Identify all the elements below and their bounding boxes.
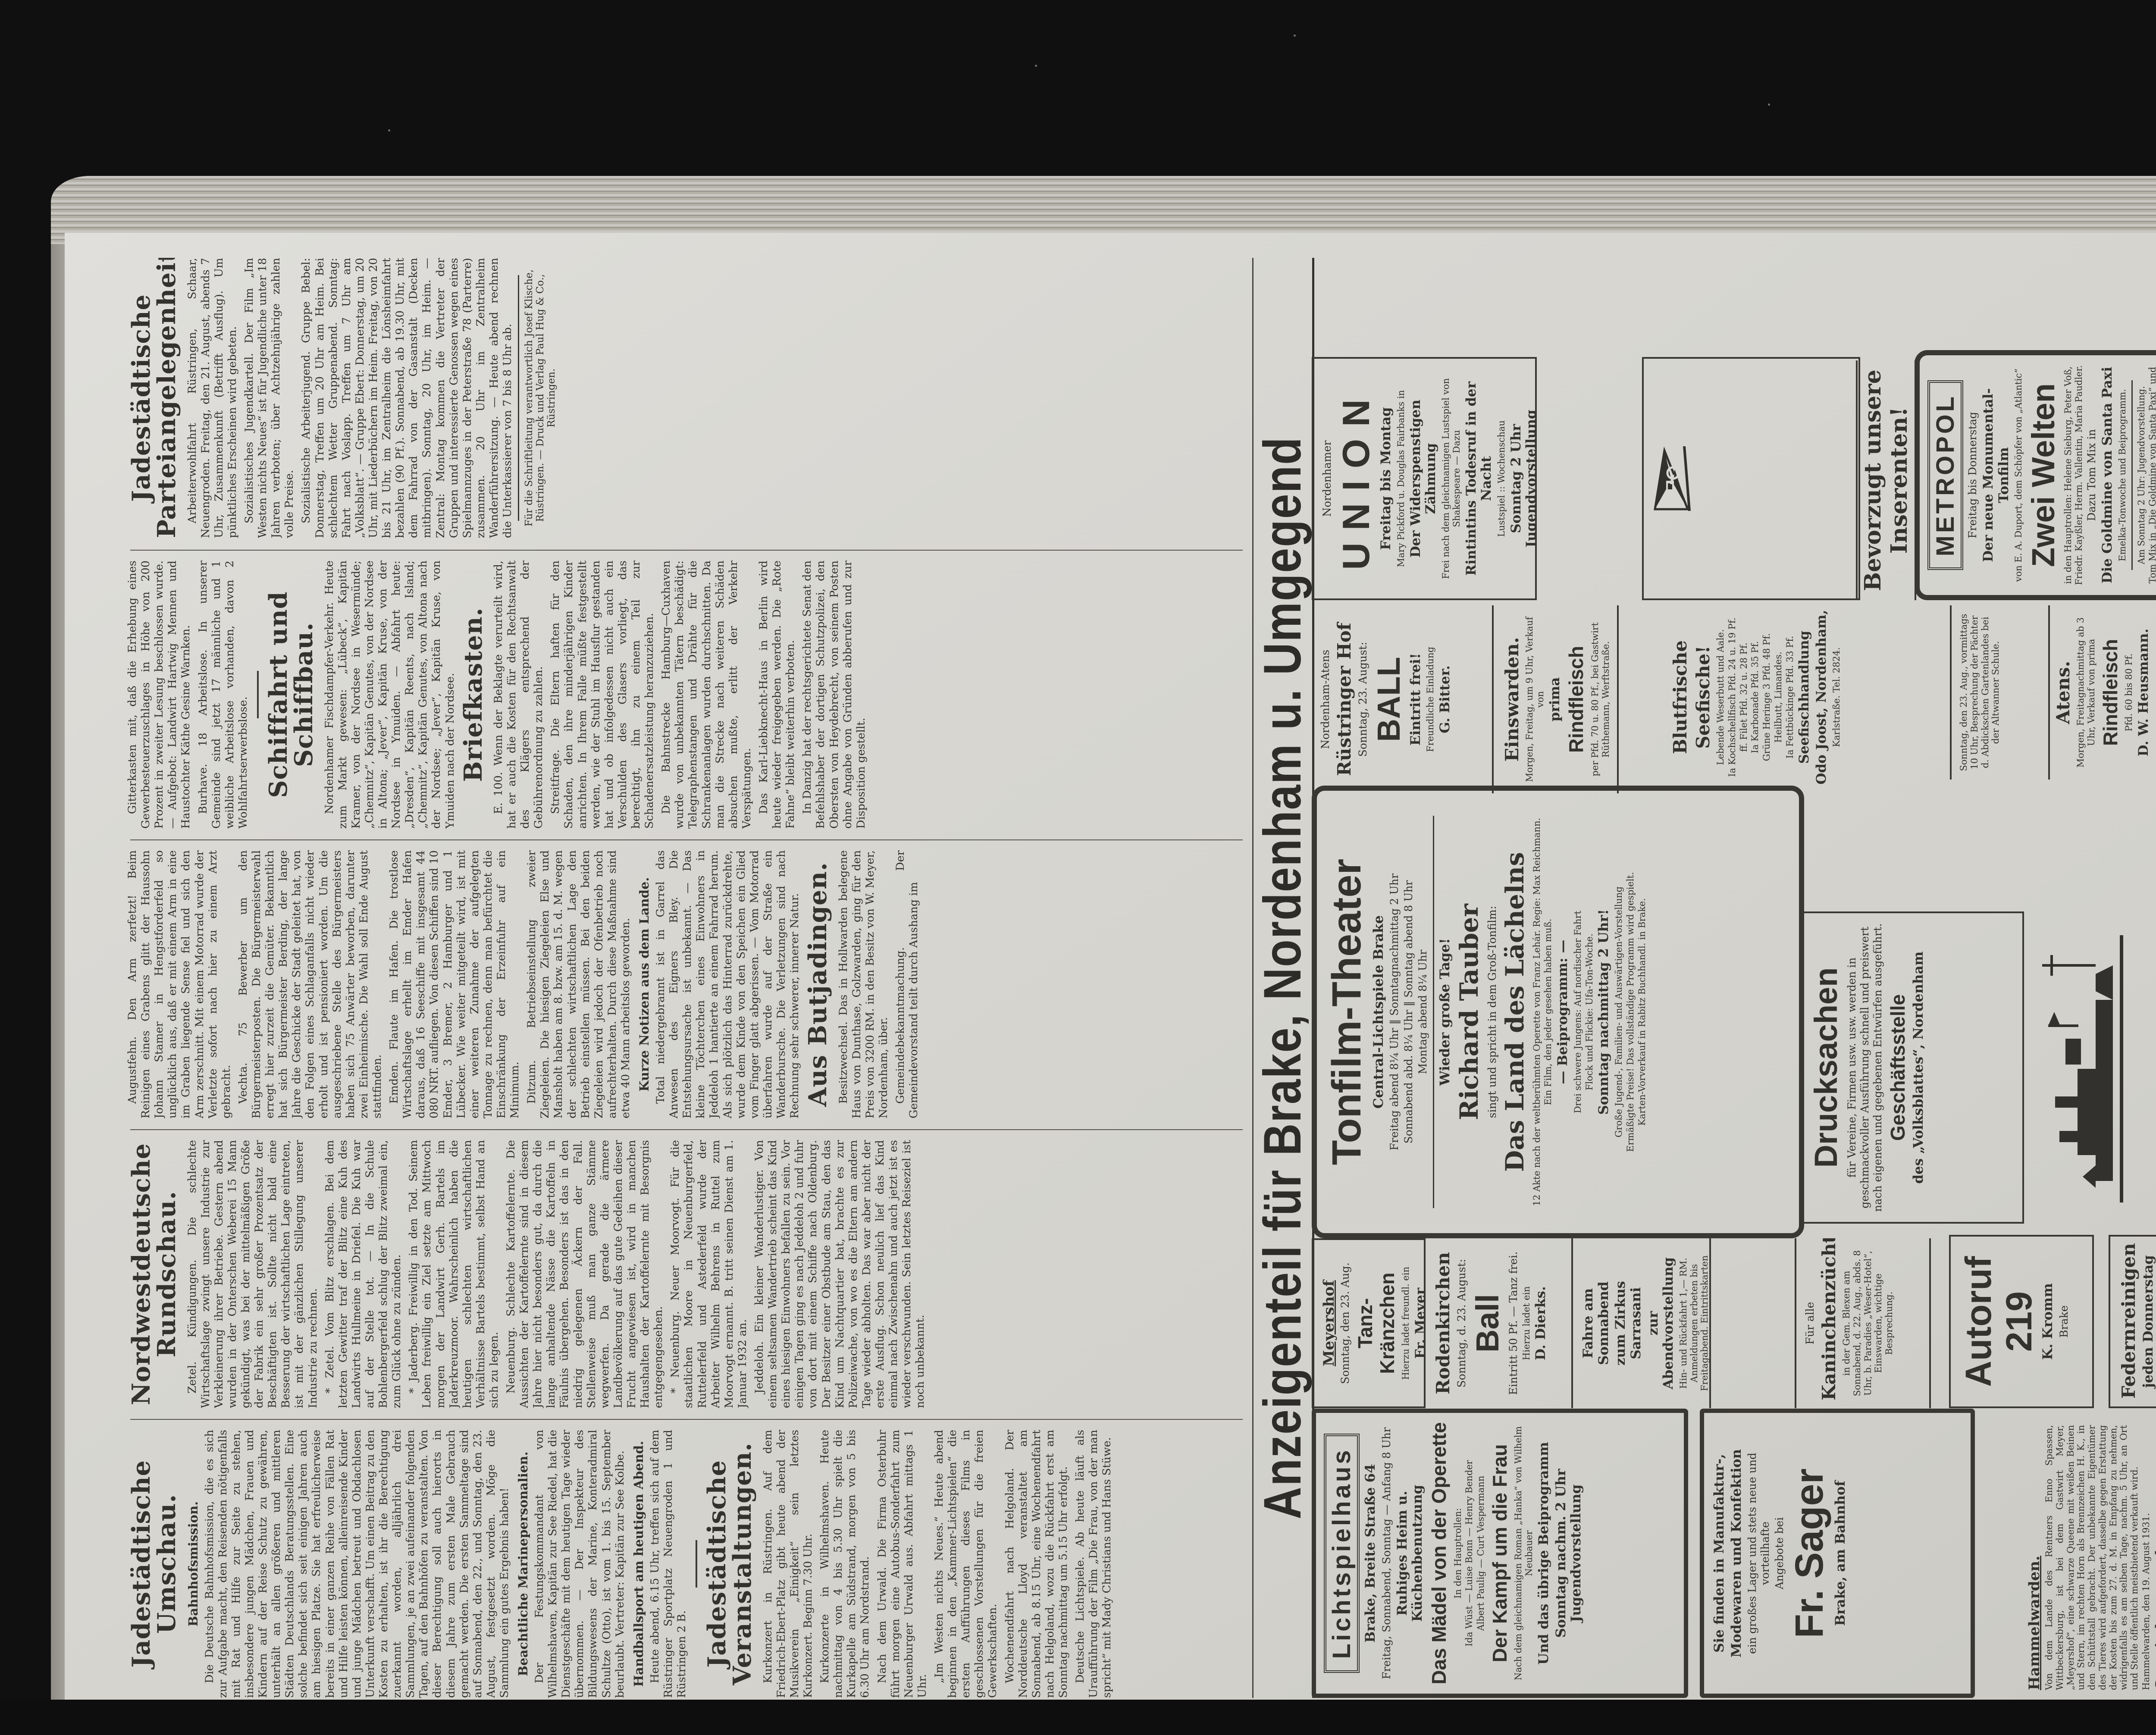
ad-kaninchenzuechter-besprechung: Für alleKaninchenzüchterin der Gem. Blex… bbox=[1795, 1238, 1931, 1408]
fraktur-display-line: Blutfrische bbox=[1670, 609, 1691, 786]
display-heading: Autoruf bbox=[1959, 1244, 1997, 1399]
paragraph: Zetel. Kündigungen. Die schlechte Wirtsc… bbox=[186, 1140, 320, 1408]
display-heading: Fr. Sager bbox=[1789, 1421, 1830, 1686]
paragraph: In Danzig hat der rechtsgerichtete Senat… bbox=[801, 561, 868, 829]
bold-line: Sie finden in Manufaktur-, bbox=[1712, 1421, 1727, 1686]
editorial-column-3: Augustfehn. Den Arm zerfetzt! Beim Reini… bbox=[126, 850, 1251, 1118]
paragraph: ein großes Lager und stets neue und vort… bbox=[1746, 1421, 1772, 1686]
bold-line: D. Dierks. bbox=[1533, 1246, 1549, 1400]
article-subhead: Bahnhofsmission. bbox=[186, 1430, 201, 1698]
dash-rule bbox=[257, 671, 259, 718]
small-paragraph: Pfd. 60 bis 80 Pf. bbox=[2124, 613, 2134, 772]
bold-line: Fahre am Sonnabend bbox=[1581, 1246, 1611, 1400]
bold-line: Ruhiges Heim u. Küchenbenutzung bbox=[1395, 1421, 1426, 1686]
fraktur-display-line: Einswarden. bbox=[1501, 613, 1523, 786]
section-masthead: Jadestädtische Veranstaltungen. bbox=[704, 1430, 755, 1698]
small-paragraph: Karten-Vorverkauf in Rabitz Buchhandl. i… bbox=[1637, 799, 1648, 1225]
nordsee-flag-icon bbox=[1651, 366, 1691, 591]
paragraph: Nordenhamer bbox=[1321, 366, 1334, 591]
small-paragraph: Mary Pickford u. Douglas Fairbanks in bbox=[1396, 366, 1407, 591]
ads-section-headline: Anzeigenteil für Brake, Nordenham u. Umg… bbox=[1252, 258, 1314, 1698]
fraktur-display-line: Federnreinigen bbox=[2118, 1244, 2139, 1399]
display-heading: BALL bbox=[1372, 613, 1406, 786]
display-subheading: Das Mädel von der Operette bbox=[1428, 1421, 1450, 1686]
paragraph: Freitag abend 8¼ Uhr ‖ Sonntagnachmittag… bbox=[1388, 799, 1401, 1225]
ad-tiergrotten-bremerhaven bbox=[2023, 904, 2156, 1234]
display-heading: 219 bbox=[2000, 1244, 2038, 1399]
bold-line: Brake, am Bahnhof bbox=[1833, 1421, 1849, 1686]
ad-rodenkirchen-ball: RodenkirchenSonntag, d. 23. August:BallE… bbox=[1425, 1238, 1575, 1408]
small-paragraph: Heilbutt, Limandes. bbox=[1773, 609, 1784, 786]
fraktur-display-line: Kaninchenzüchter bbox=[1818, 1246, 1839, 1400]
paragraph: Eintritt 50 Pf. — Tanz frei. bbox=[1507, 1246, 1520, 1400]
fraktur-display-line: Atens. bbox=[2053, 613, 2074, 772]
paragraph: E. 100. Wenn der Beklagte verurteilt wir… bbox=[492, 561, 545, 829]
paragraph: Burhave. 18 Arbeitslose. In unserer Geme… bbox=[197, 561, 250, 829]
section-masthead: Nordwestdeutsche Rundschau. bbox=[128, 1140, 180, 1408]
paragraph: Angebote bei bbox=[1773, 1421, 1786, 1686]
paragraph: Vechta. 75 Bewerber um den Bürgermeister… bbox=[237, 850, 384, 1118]
bold-line: Odo Joost, Nordenham, bbox=[1814, 609, 1830, 786]
ad-paechter-besprechung: Sonntag, den 23. Aug., vormittags 10 Uhr… bbox=[1950, 605, 2050, 780]
paragraph: Heute abend, 6.15 Uhr, treffen sich auf … bbox=[649, 1430, 689, 1698]
bold-line: Und das übrige Beiprogramm bbox=[1536, 1421, 1552, 1686]
fraktur-display-line: Seefische! bbox=[1692, 609, 1714, 786]
bold-line: Wieder große Tage! bbox=[1438, 799, 1453, 1225]
small-paragraph: 12 Akte nach der weltberühmten Operette … bbox=[1532, 799, 1542, 1225]
paragraph: Nordenham-Atens bbox=[1319, 613, 1332, 786]
article-subhead: Beachtliche Marinepersonalien. bbox=[516, 1430, 530, 1698]
paragraph: Arbeiterwohlfahrt Rüstringen, Schaar, Ne… bbox=[186, 258, 239, 538]
ad-einswarden-rindfleisch: Einswarden.Morgen, Freitag, um 9 Uhr, Ve… bbox=[1492, 605, 1619, 793]
column-rule bbox=[130, 550, 1243, 551]
boxed-title: METROPOL bbox=[1927, 380, 1963, 570]
paragraph: Sonntag, den 23. Aug. bbox=[1339, 1248, 1352, 1399]
bold-line: Freitag bis Montag bbox=[1379, 366, 1394, 591]
ad-atens-rindfleisch: Atens.Morgen, Freitagnachmittag ab 3 Uhr… bbox=[2045, 605, 2156, 780]
paragraph: Total niedergebrannt ist in Garrel das A… bbox=[654, 850, 802, 1118]
small-paragraph: Hierzu ladet freundl. ein bbox=[1401, 1248, 1411, 1399]
paragraph: Freitag, Sonnabend, Sonntag — Anfang 8 U… bbox=[1380, 1421, 1393, 1686]
ad-autoruf-219-kromm: Autoruf219K. KrommBrake bbox=[1949, 1235, 2094, 1408]
paragraph: Montag abend 8¼ Uhr bbox=[1416, 799, 1429, 1225]
paragraph: Gemeindebekanntmachung. Der Gemeindevors… bbox=[894, 850, 921, 1118]
paragraph: Augustfehn. Den Arm zerfetzt! Beim Reini… bbox=[126, 850, 233, 1118]
bold-line: zur Abendvorstellung bbox=[1646, 1246, 1677, 1400]
paragraph: Die Deutsche Bahnhofsmission, die es sic… bbox=[203, 1430, 512, 1698]
small-paragraph: Grüne Heringe 3 Pfd. 48 Pf. bbox=[1761, 609, 1772, 786]
display-heading: Drucksachen bbox=[1809, 921, 1843, 1214]
small-paragraph: Ia Karbonade Pfd. 35 Pf. bbox=[1750, 609, 1761, 786]
article-subhead: Kurze Notizen aus dem Lande. bbox=[637, 850, 652, 1118]
small-paragraph: Hin- und Rückfahrt 1,— RM. Anmeldungen e… bbox=[1678, 1246, 1711, 1400]
display-subheading: Rindfleisch bbox=[2100, 613, 2122, 772]
section-masthead: Jadestädtische Parteiangelegenheiten. bbox=[128, 258, 180, 538]
small-paragraph: Emelka-Tonwoche und Beiprogramm. bbox=[2117, 363, 2128, 587]
bold-line: K. Kromm bbox=[2040, 1244, 2056, 1399]
small-paragraph: Lebende Weserbutt und Aale. bbox=[1715, 609, 1726, 786]
fraktur-display-line: Rodenkirchen bbox=[1432, 1246, 1454, 1400]
paragraph: Brake bbox=[2058, 1244, 2071, 1399]
section-masthead: Schiffahrt und Schiffbau. bbox=[266, 561, 317, 829]
ad-bevorzugt-unsere-inserenten: Bevorzugt unsere Inserenten! bbox=[1856, 360, 1916, 600]
paragraph: * Zetel. Vom Blitz erschlagen. Bei dem l… bbox=[323, 1140, 404, 1408]
column-rule bbox=[130, 839, 1243, 840]
ad-federnreinigen-michaels: Federnreinigenjeden Donnerstagbei genüge… bbox=[2109, 1235, 2156, 1408]
small-paragraph: Ida Wüst — Luise Bonn — Henry Bender bbox=[1464, 1421, 1475, 1686]
bold-line: jeden Donnerstag bbox=[2141, 1244, 2156, 1399]
small-paragraph: Frei nach dem gleichnamigen Lustspiel vo… bbox=[1441, 366, 1462, 591]
paragraph: singt und spricht in dem Groß-Tonfilm: bbox=[1486, 799, 1499, 1225]
small-paragraph: Nach dem gleichnamigen Roman „Hanka“ von… bbox=[1513, 1421, 1535, 1686]
paragraph: Nach dem Urwald. Die Firma Osterbuhr füh… bbox=[876, 1430, 929, 1698]
ad-zirkus-sarrasani-fahrt: Fahre am Sonnabendzum Zirkus Sarrasanizu… bbox=[1571, 1238, 1711, 1408]
small-paragraph: Freundliche Einladung bbox=[1425, 613, 1436, 786]
paragraph: Deutsche Lichtspiele. Ab heute läuft als… bbox=[1074, 1430, 1114, 1698]
ad-tonfilm-theater-central-lichtspiele: Tonfilm-TheaterCentral-Lichtspiele Brake… bbox=[1312, 786, 1804, 1238]
paragraph: * Jaderberg. Freiwillig in den Tod. Sein… bbox=[407, 1140, 501, 1408]
rule bbox=[518, 275, 519, 521]
small-paragraph: Hammelwarden, den 19. August 1931. bbox=[2141, 1425, 2152, 1690]
bold-line: Fr. Meyer bbox=[1413, 1248, 1426, 1399]
fraktur-display-line: Bevorzugt unsere Inserenten! bbox=[1860, 368, 1912, 592]
ad-metropol-kino: METROPOLFreitag bis DonnerstagDer neue M… bbox=[1915, 350, 2156, 600]
fraktur-display-line: Rüstringer Hof bbox=[1334, 613, 1355, 786]
ad-union-lichtspiele-nordenham: NordenhamerUNIONFreitag bis MontagMary P… bbox=[1312, 357, 1537, 600]
article-subhead: Handballsport am heutigen Abend. bbox=[631, 1430, 646, 1698]
ad-lichtspielhaus-brake: LichtspielhausBrake, Breite Straße 64Fre… bbox=[1312, 1409, 1688, 1698]
section-masthead: Briefkasten. bbox=[461, 561, 486, 829]
small-paragraph: Hierzu ladet ein bbox=[1521, 1246, 1532, 1400]
display-subheading: Geschäftsstelle bbox=[1887, 921, 1909, 1214]
editorial-column-1: Jadestädtische Umschau.Bahnhofsmission.D… bbox=[126, 1430, 1251, 1698]
editorial-column-4: Gitterkasten mit, daß die Erhebung eines… bbox=[126, 561, 1251, 829]
bold-line: — Beiprogramm: — bbox=[1555, 799, 1571, 1225]
paragraph: Besitzwechsel. Das in Hollwarden belegen… bbox=[837, 850, 890, 1118]
paragraph: Dazu Tom Mix in bbox=[2085, 363, 2098, 587]
ads-section-headline-text: Anzeigenteil für Brake, Nordenham u. Umg… bbox=[1253, 436, 1313, 1519]
small-paragraph: Lustspiel :: Wochenschau bbox=[1496, 366, 1507, 591]
paragraph: Nordenhamer Fischdampfer-Verkehr. Heute … bbox=[323, 561, 457, 829]
paragraph: * Neuenburg. Neuer Moorvogt. Für die sta… bbox=[669, 1140, 749, 1408]
bold-line: Modewaren und Konfektion bbox=[1729, 1421, 1745, 1686]
bold-line: Rintintins Todesruf in der Nacht bbox=[1464, 366, 1495, 591]
bold-line: zum Zirkus Sarrasani bbox=[1613, 1246, 1644, 1400]
bold-line: Die Goldmine von Santa Paxi bbox=[2100, 363, 2115, 587]
ad-ruestringer-hof-ball: Nordenham-AtensRüstringer HofSonntag, 23… bbox=[1312, 605, 1496, 793]
display-heading: UNION bbox=[1336, 366, 1376, 591]
paragraph: Emden. Flaute im Hafen. Die trostlose Wi… bbox=[388, 850, 522, 1118]
paragraph: Die Bahnstrecke Hamburg—Cuxhaven wurde v… bbox=[660, 561, 754, 829]
display-subheading: Rindfleisch bbox=[1565, 613, 1587, 786]
small-paragraph: in den Hauptrollen: Helene Sieburg, Pete… bbox=[2063, 363, 2084, 587]
bold-line: Sonntag 2 Uhr Jugendvorstellung bbox=[1509, 366, 1537, 591]
section-masthead: Aus Butjadingen. bbox=[805, 850, 830, 1118]
paragraph: Freitag bis Donnerstag bbox=[1966, 363, 1979, 587]
bold-line: D. W. Heusmann. bbox=[2136, 613, 2152, 772]
display-subheading: Das Land des Lächelns bbox=[1501, 799, 1529, 1225]
ad-hammelwarden-gemeinde-notice: Hammelwarden.Von dem Lande des Rentners … bbox=[2019, 1417, 2156, 1698]
small-paragraph: Große Jugend-, Familien- und Auswärtigen… bbox=[1614, 799, 1624, 1225]
ad-drucksachen-volksblatt: Drucksachenfür Vereine, Firmen usw. usw.… bbox=[1799, 911, 2024, 1224]
small-paragraph: Albert Paulig — Curt Vespermann bbox=[1476, 1421, 1486, 1686]
paragraph: Der Festungskommandant von Wilhelmshaven… bbox=[533, 1430, 627, 1698]
column-rule bbox=[130, 1129, 1243, 1130]
paragraph: Wochenendfahrt nach Helgoland. Der Nordd… bbox=[1003, 1430, 1071, 1698]
bold-line: prima bbox=[1548, 613, 1563, 786]
bold-line: Der Widerspenstigen Zähmung bbox=[1408, 366, 1439, 591]
small-paragraph: Karlstraße. Tel. 2824. bbox=[1831, 609, 1842, 786]
small-paragraph: Am Sonntag 2 Uhr: Jugendvorstellung. bbox=[2136, 363, 2147, 587]
bold-line: des „Volksblattes“, Nordenham bbox=[1911, 921, 1927, 1214]
bold-line: Der neue Monumental-Tonfilm bbox=[1981, 363, 2012, 587]
ad-fr-sager-modewaren: Sie finden in Manufaktur-,Modewaren und … bbox=[1700, 1409, 1975, 1698]
paragraph: Sozialistische Arbeiterjugend. Gruppe Be… bbox=[300, 258, 514, 538]
ad-meyershof-tanz-kraenzchen: MeyershofSonntag, den 23. Aug.Tanz-Kränz… bbox=[1312, 1238, 1426, 1408]
small-paragraph: ff. Filet Pfd. 32 u. 28 Pf. bbox=[1739, 609, 1749, 786]
paragraph: Das Karl-Liebknecht-Haus in Berlin wird … bbox=[757, 561, 797, 829]
paragraph: Sozialistisches Jugendkartell. Der Film … bbox=[243, 258, 296, 538]
small-paragraph: Ermäßigte Preise! Das vollständige Progr… bbox=[1625, 799, 1636, 1225]
small-paragraph: in der Gem. Blexen am Sonnabend, d. 22. … bbox=[1841, 1246, 1895, 1400]
small-paragraph: Ia Fettbückinge Pfd. 33 Pf. bbox=[1785, 609, 1796, 786]
ad-nordsee-fischhandlung bbox=[1642, 357, 1860, 600]
paragraph: Neuenburg. Schlechte Kartoffelernte. Die… bbox=[505, 1140, 665, 1408]
scanner-background bbox=[0, 1700, 2156, 1735]
rule bbox=[1433, 816, 1434, 1208]
paragraph: Jeddeloh. Ein kleiner Wanderlustiger. Vo… bbox=[753, 1140, 927, 1408]
display-subheading: Der Kampf um die Frau bbox=[1489, 1421, 1511, 1686]
bold-line: Sonntag nachm. 2 Uhr Jugendvorstellung bbox=[1554, 1421, 1584, 1686]
display-heading: Tonfilm-Theater bbox=[1326, 799, 1369, 1225]
bold-line: Seefischhandlung bbox=[1797, 609, 1812, 786]
small-paragraph: von E. A. Duport, dem Schöpfer von „Atla… bbox=[2013, 363, 2024, 587]
paragraph: „Im Westen nichts Neues.“ Heute abend be… bbox=[933, 1430, 1000, 1698]
ads-section: LichtspielhausBrake, Breite Straße 64Fre… bbox=[1312, 258, 2156, 1698]
paragraph: Kurkonzert in Rüstringen. Auf dem Friedr… bbox=[761, 1430, 815, 1698]
bold-line: Brake, Breite Straße 64 bbox=[1363, 1421, 1379, 1686]
bold-line: Eintritt frei! bbox=[1408, 613, 1424, 786]
dash-rule bbox=[696, 1540, 697, 1588]
section-masthead: Jadestädtische Umschau. bbox=[128, 1430, 180, 1698]
paragraph: Ditzum. Betriebseinstellung zweier Ziege… bbox=[525, 850, 633, 1118]
bold-line: Central-Lichtspiele Brake bbox=[1371, 799, 1387, 1225]
paragraph: Sonntag, 23. August: bbox=[1357, 613, 1369, 786]
small-paragraph: Morgen, Freitagnachmittag ab 3 Uhr, Verk… bbox=[2075, 613, 2097, 772]
bold-line: Sonntag nachmittag 2 Uhr! bbox=[1596, 799, 1612, 1225]
paragraph: Sonntag, d. 23. August: bbox=[1455, 1246, 1468, 1400]
editorial-column-5: Jadestädtische Parteiangelegenheiten.Arb… bbox=[126, 258, 1251, 538]
display-subheading: Richard Tauber bbox=[1456, 799, 1483, 1225]
editorial-section: Jadestädtische Umschau.Bahnhofsmission.D… bbox=[126, 258, 1251, 1698]
column-rule bbox=[130, 1419, 1243, 1420]
display-heading: Zwei Welten bbox=[2027, 363, 2060, 587]
rotated-newspaper-content: Jadestädtische Umschau.Bahnhofsmission.D… bbox=[109, 258, 2156, 1698]
paragraph: Für alle bbox=[1804, 1246, 1817, 1400]
display-heading: Ball bbox=[1471, 1246, 1504, 1400]
paragraph: Sonnabend abd. 8¼ Uhr ‖ Sonntag abend 8 … bbox=[1402, 799, 1415, 1225]
small-paragraph: Morgen, Freitag, um 9 Uhr, Verkauf von bbox=[1524, 613, 1546, 786]
display-subheading: Tanz-Kränzchen bbox=[1354, 1248, 1398, 1399]
paragraph: Kurkonzerte in Wilhelmshaven. Heute nach… bbox=[818, 1430, 872, 1698]
small-paragraph: Tom Mix in „Die Goldmine von Santa Paxi“… bbox=[2147, 363, 2156, 587]
paragraph: Gitterkasten mit, daß die Erhebung eines… bbox=[126, 561, 193, 829]
ad-seefische-odo-joost: BlutfrischeSeefische!Lebende Weserbutt u… bbox=[1662, 601, 1950, 793]
small-paragraph: Sonntag, den 23. Aug., vormittags 10 Uhr… bbox=[1959, 613, 2001, 772]
paragraph: für Vereine, Firmen usw. usw. werden in … bbox=[1846, 921, 1884, 1214]
boxed-title: Lichtspielhaus bbox=[1324, 1434, 1360, 1672]
paragraph: Streitfrage. Die Eltern haften für den S… bbox=[549, 561, 656, 829]
underlined-title: Hammelwarden. bbox=[2026, 1425, 2043, 1690]
small-paragraph: Ein Film, den jeder gesehen haben muß. bbox=[1543, 799, 1554, 1225]
editorial-column-2: Nordwestdeutsche Rundschau.Zetel. Kündig… bbox=[126, 1140, 1251, 1408]
small-paragraph: Von dem Lande des Rentners Enno Spassen,… bbox=[2044, 1425, 2140, 1690]
impressum-line: Für die Schriftleitung verantwortlich Jo… bbox=[523, 258, 557, 538]
rule bbox=[2131, 380, 2133, 570]
bold-line: Gemeindevorstand Hammelwarden. bbox=[2153, 1425, 2156, 1690]
ship-skyline-illustration bbox=[2031, 911, 2130, 1226]
bold-line: G. Bitter. bbox=[1438, 613, 1453, 786]
underlined-title: Meyershof bbox=[1320, 1248, 1338, 1399]
small-paragraph: per Pfd. 70 u. 80 Pf., bei Gastwirt Rüth… bbox=[1590, 613, 1611, 786]
small-paragraph: In den Hauptrollen: bbox=[1453, 1421, 1463, 1686]
scanned-newspaper-photo: { "meta": { "description_colors": { "bac… bbox=[0, 0, 2156, 1735]
small-paragraph: Ia Kochschellfisch Pfd. 24 u. 19 Pf. bbox=[1727, 609, 1738, 786]
small-paragraph: Drei schwere Jungens: Auf nordischer Fah… bbox=[1573, 799, 1583, 1225]
small-paragraph: Flock und Flickie: Ufa-Ton-Woche. bbox=[1584, 799, 1595, 1225]
